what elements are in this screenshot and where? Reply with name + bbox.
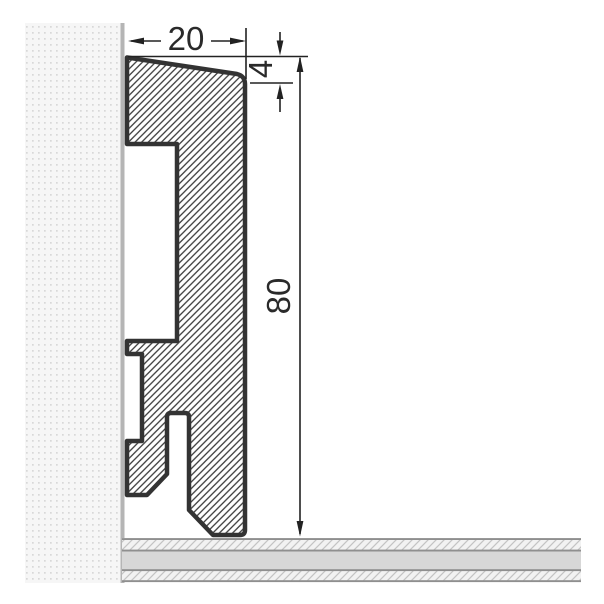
skirting-profile-drawing: 20 4 80 [0,0,604,604]
arrowhead-down [277,41,284,56]
width-dimension-label: 20 [168,20,205,57]
height-dimension-label: 80 [260,278,297,315]
arrowhead-top [297,57,304,73]
wall-section [25,23,125,583]
wall-stipple-area [25,23,124,583]
arrowhead-up [277,84,284,99]
floor-middle-layer [122,551,581,569]
skirting-profile-cross-section [127,58,245,536]
floor-section [122,538,581,582]
arrowhead-bottom [297,521,304,537]
floor-bottom-screed-layer [122,571,581,580]
wall-surface-line [121,23,125,583]
bevel-dimension-label: 4 [242,60,279,78]
arrowhead-right [230,38,246,45]
height-dimension [297,57,304,537]
floor-top-screed-layer [122,540,581,550]
technical-drawing-canvas: 20 4 80 [0,0,604,604]
arrowhead-left [128,38,144,45]
